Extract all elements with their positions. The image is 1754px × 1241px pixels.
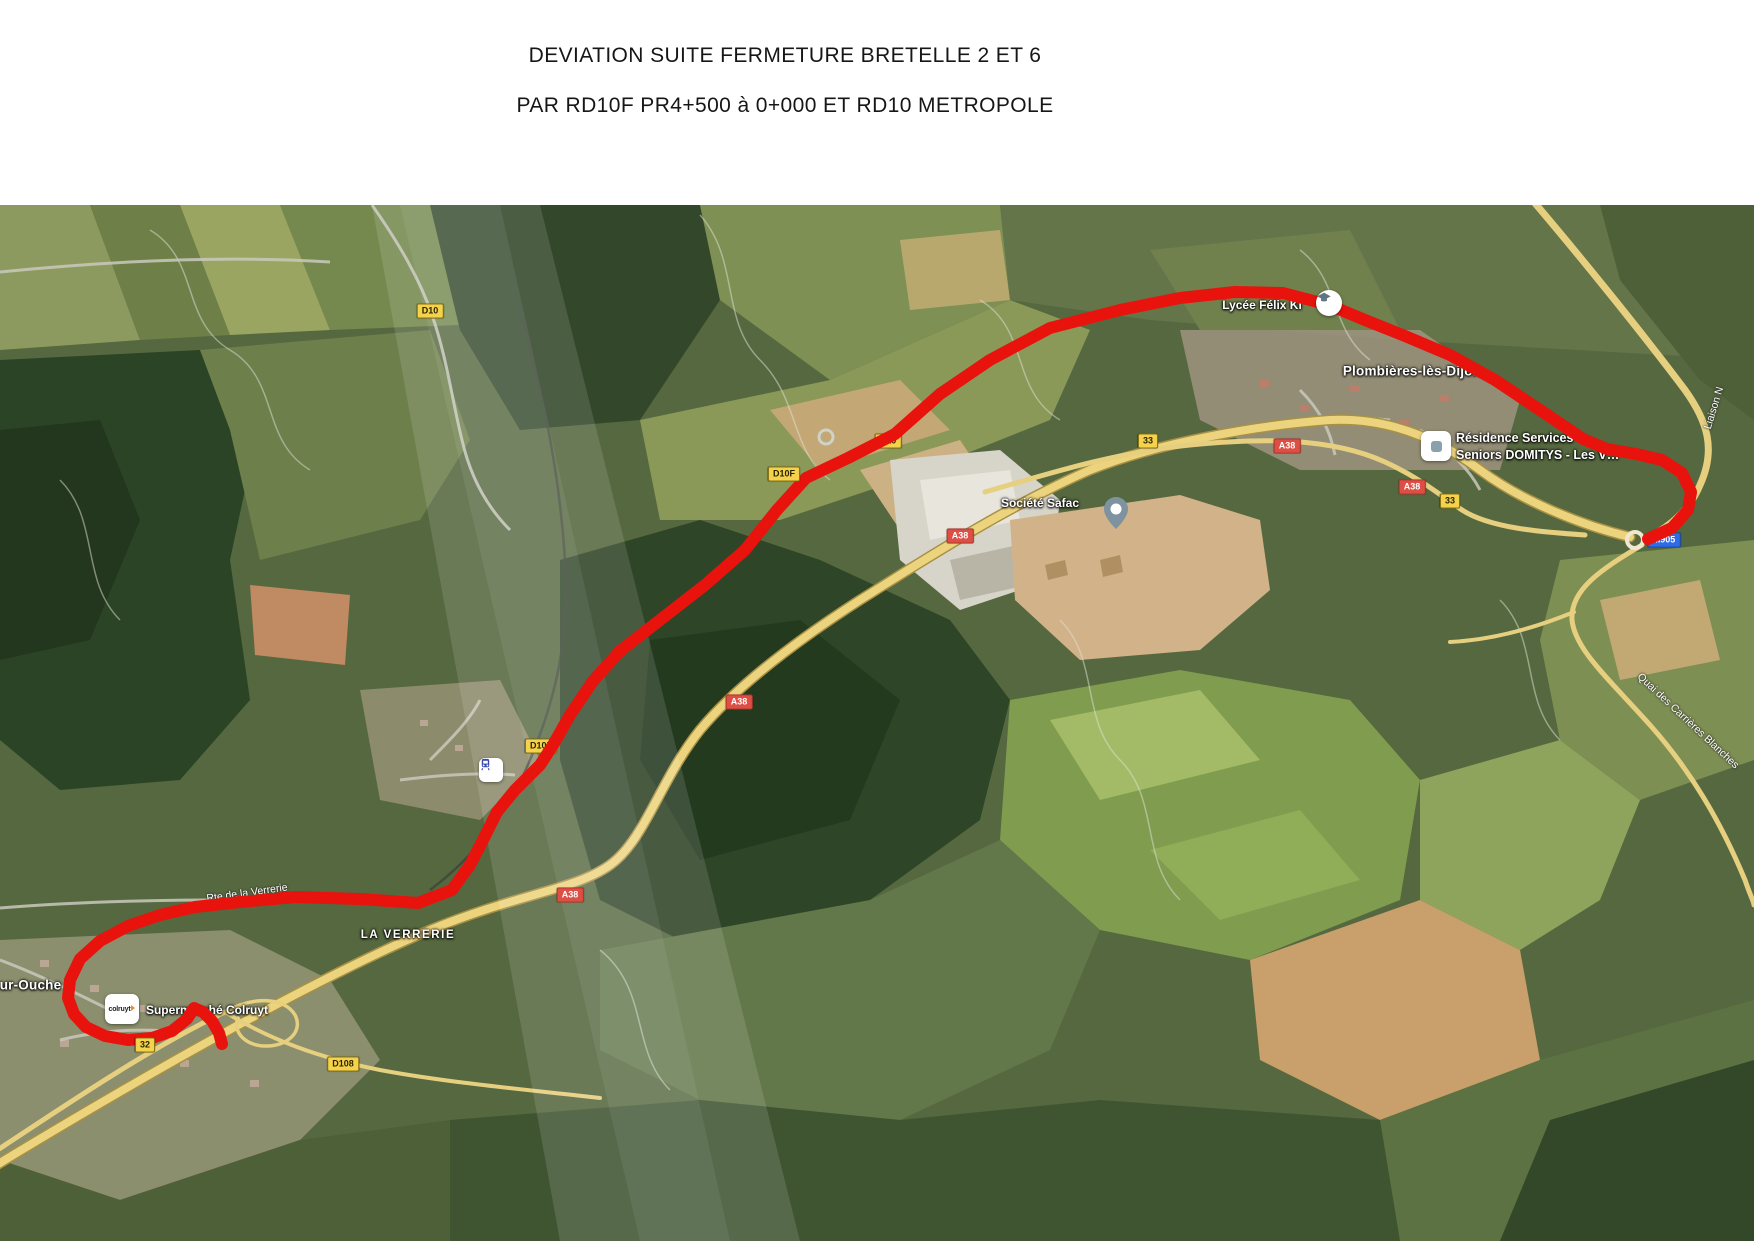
markers-layer: D10 D10F 33 33 32 D108 A38 A38 A38 A38 A… [0, 205, 1754, 1241]
satellite-map: Lycée Félix Ki Plombières-lès-Dijon Rési… [0, 205, 1754, 1241]
shield-a38-verrerie: A38 [557, 888, 584, 903]
shield-d10-top: D10 [417, 304, 444, 319]
title-block: DEVIATION SUITE FERMETURE BRETELLE 2 ET … [517, 44, 1054, 118]
map-pin-icon [1104, 497, 1128, 529]
station-marker [479, 758, 503, 782]
shield-a38-east: A38 [1399, 480, 1426, 495]
residence-marker [1421, 431, 1451, 461]
school-marker [1316, 290, 1342, 316]
shield-a38-mid: A38 [726, 695, 753, 710]
shield-a38-plombieres: A38 [1274, 439, 1301, 454]
shield-33-east: 33 [1440, 494, 1460, 509]
building-icon [1431, 441, 1442, 452]
shield-a38-safac: A38 [947, 529, 974, 544]
graduation-cap-icon [1316, 290, 1332, 306]
colruyt-logo: colruyt [109, 1005, 136, 1013]
deviation-notice-page: { "title": { "line1": "DEVIATION SUITE F… [0, 0, 1754, 1241]
shield-d108: D108 [327, 1057, 359, 1072]
colruyt-marker: colruyt [105, 994, 139, 1024]
shield-d10f-junction: D10F [768, 467, 800, 482]
shield-33-west: 33 [1138, 434, 1158, 449]
train-icon [479, 758, 492, 771]
title-line-2: PAR RD10F PR4+500 à 0+000 ET RD10 METROP… [517, 94, 1054, 118]
title-line-1: DEVIATION SUITE FERMETURE BRETELLE 2 ET … [517, 44, 1054, 68]
document-page: DEVIATION SUITE FERMETURE BRETELLE 2 ET … [0, 0, 1754, 1241]
shield-32: 32 [135, 1038, 155, 1053]
